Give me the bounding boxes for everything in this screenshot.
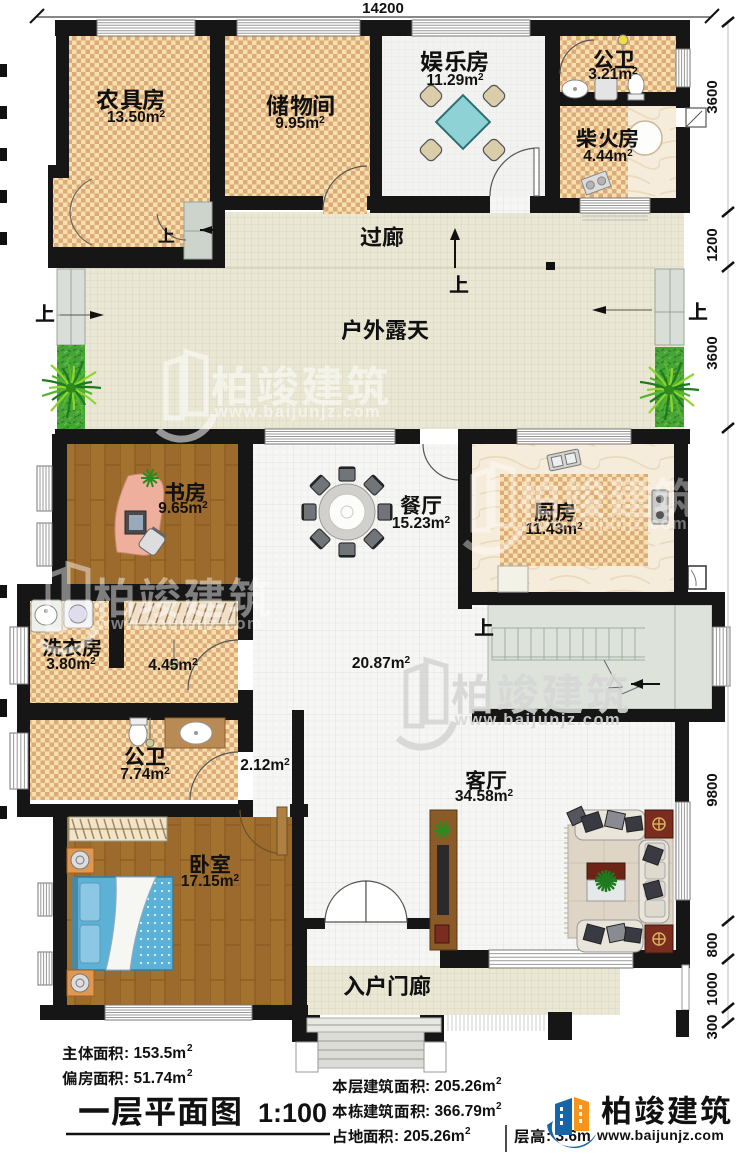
svg-text:14200: 14200 bbox=[362, 0, 404, 17]
svg-text:1200: 1200 bbox=[704, 228, 721, 261]
svg-text:www.baijunjz.com: www.baijunjz.com bbox=[454, 711, 621, 729]
svg-text:9.65m2: 9.65m2 bbox=[158, 500, 208, 517]
svg-text:2: 2 bbox=[496, 1101, 502, 1112]
svg-text:1:100: 1:100 bbox=[258, 1098, 327, 1128]
svg-text:800: 800 bbox=[704, 932, 721, 957]
svg-text:3600: 3600 bbox=[704, 80, 721, 113]
svg-text:: 205.26m: : 205.26m bbox=[394, 1128, 465, 1145]
svg-text:2: 2 bbox=[187, 1068, 193, 1079]
svg-text:: 205.26m: : 205.26m bbox=[425, 1078, 496, 1095]
svg-text:300: 300 bbox=[704, 1014, 721, 1039]
svg-text:4.44m2: 4.44m2 bbox=[583, 148, 633, 165]
svg-text:2: 2 bbox=[187, 1043, 193, 1054]
svg-text:13.50m2: 13.50m2 bbox=[107, 109, 166, 126]
svg-text:www.baijunjz.com: www.baijunjz.com bbox=[96, 615, 263, 633]
svg-text:4.45m2: 4.45m2 bbox=[148, 657, 198, 674]
svg-text:17.15m2: 17.15m2 bbox=[181, 873, 240, 890]
svg-text:: 366.79m: : 366.79m bbox=[425, 1103, 496, 1120]
svg-text:9800: 9800 bbox=[704, 773, 721, 806]
svg-text:3.21m2: 3.21m2 bbox=[588, 66, 638, 83]
svg-text:www.baijunjz.com: www.baijunjz.com bbox=[521, 515, 688, 533]
svg-text:3.80m2: 3.80m2 bbox=[46, 656, 96, 673]
svg-text:2: 2 bbox=[496, 1076, 502, 1087]
svg-text:3600: 3600 bbox=[704, 336, 721, 369]
svg-text:1000: 1000 bbox=[704, 972, 721, 1005]
svg-text:: 153.5m: : 153.5m bbox=[124, 1045, 186, 1062]
svg-text:www.baijunjz.com: www.baijunjz.com bbox=[596, 1127, 724, 1143]
svg-text:34.58m2: 34.58m2 bbox=[455, 788, 514, 805]
svg-text:: 51.74m: : 51.74m bbox=[124, 1070, 186, 1087]
svg-text:2.12m2: 2.12m2 bbox=[240, 757, 290, 774]
svg-text:20.87m2: 20.87m2 bbox=[352, 655, 411, 672]
svg-text:7.74m2: 7.74m2 bbox=[120, 766, 170, 783]
svg-text:www.baijunjz.com: www.baijunjz.com bbox=[214, 403, 381, 421]
svg-text:11.29m2: 11.29m2 bbox=[426, 72, 484, 89]
svg-text:9.95m2: 9.95m2 bbox=[275, 115, 325, 132]
svg-text:15.23m2: 15.23m2 bbox=[392, 515, 451, 532]
svg-text:2: 2 bbox=[465, 1126, 471, 1137]
